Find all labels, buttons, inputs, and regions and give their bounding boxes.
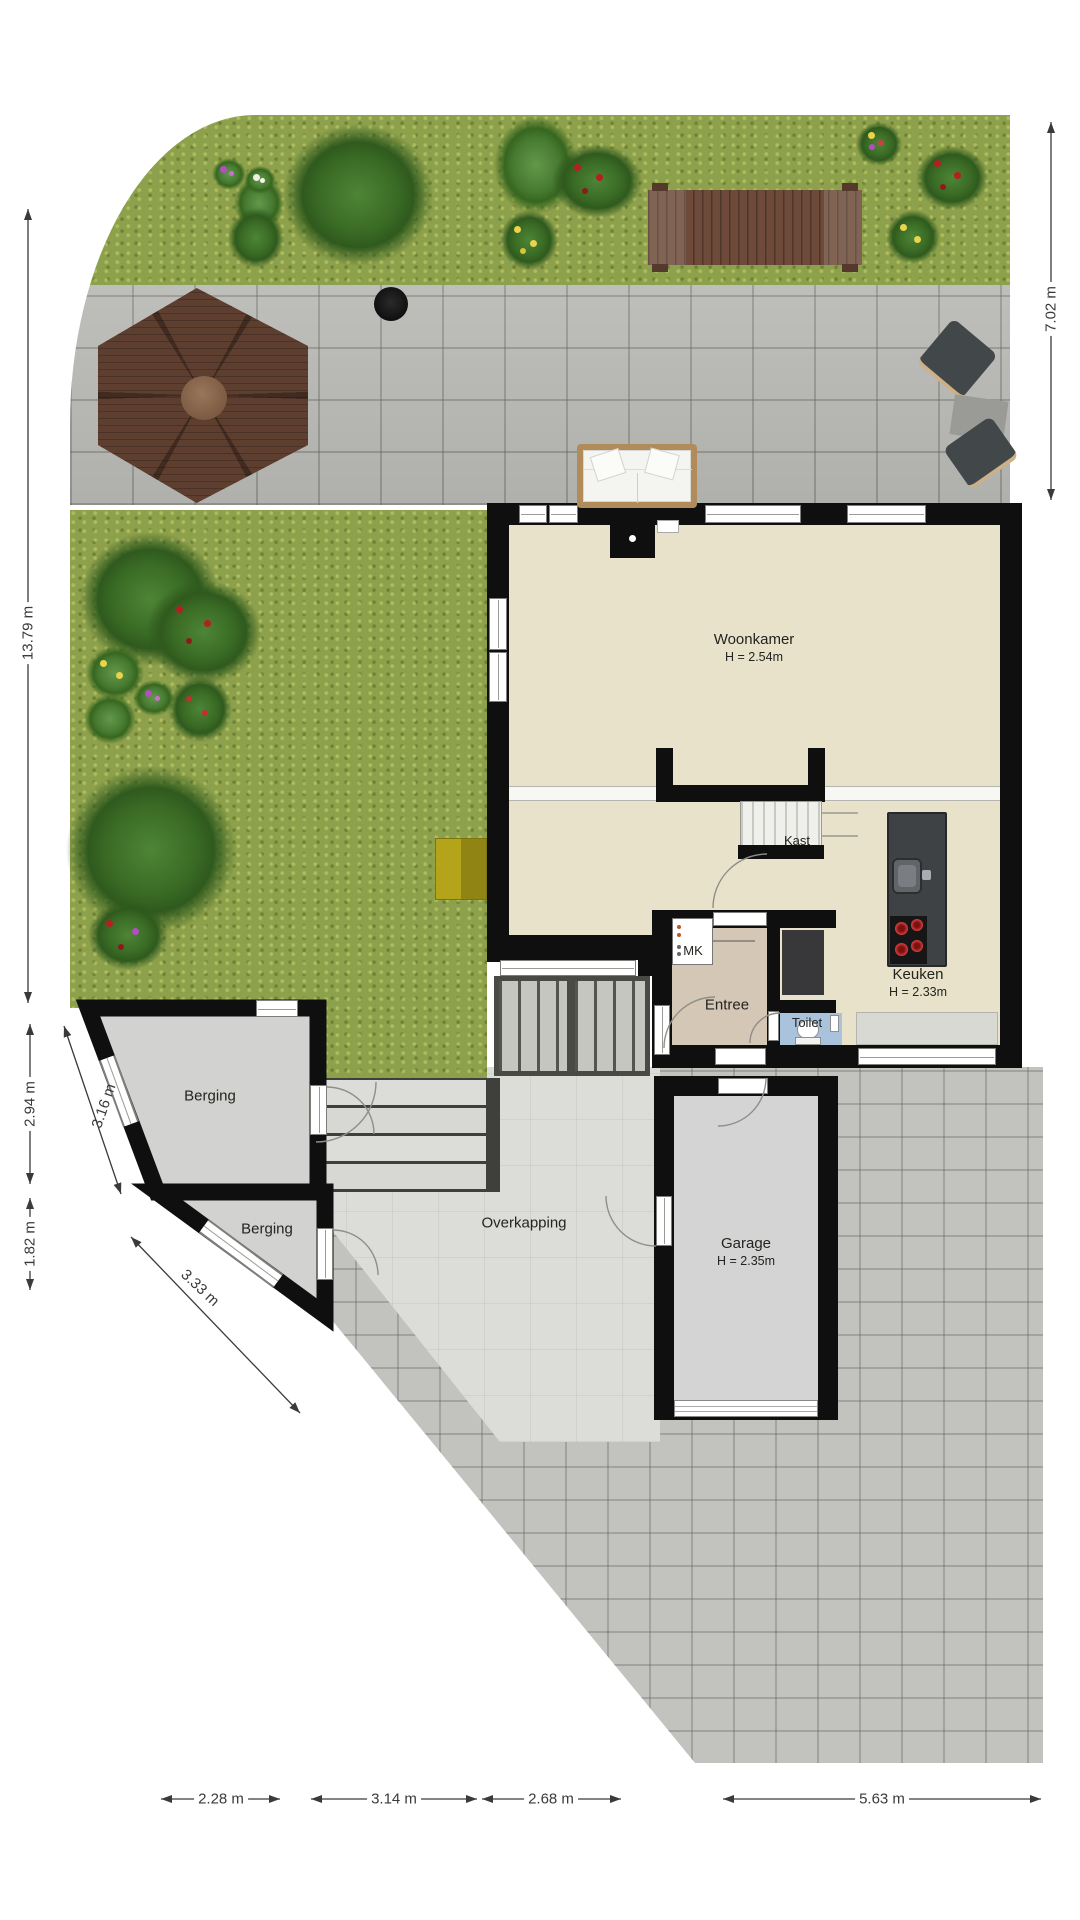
floor-plan: Woonkamer H = 2.54m Keuken H = 2.33m Gar… — [0, 0, 1080, 1920]
room-label-woonkamer: Woonkamer H = 2.54m — [714, 631, 795, 665]
room-label-keuken: Keuken H = 2.33m — [889, 966, 947, 1000]
room-label-berging-lower: Berging — [241, 1221, 293, 1240]
room-height: H = 2.33m — [889, 985, 947, 1001]
room-name: Berging — [241, 1221, 293, 1240]
room-name: Kast — [784, 833, 810, 849]
room-name: MK — [683, 943, 703, 959]
room-label-toilet: Toilet — [792, 1015, 822, 1031]
room-label-garage: Garage H = 2.35m — [717, 1235, 775, 1269]
window — [256, 1000, 298, 1017]
dimension-label: 2.94 m — [22, 1077, 39, 1131]
room-name: Berging — [184, 1088, 236, 1107]
dimension-label: 3.14 m — [367, 1791, 421, 1808]
dimension-label: 7.02 m — [1043, 282, 1060, 336]
plan-linework — [0, 0, 1080, 1920]
dimension-lines — [28, 122, 1051, 1799]
dimension-label: 1.82 m — [22, 1217, 39, 1271]
dimension-label: 2.28 m — [194, 1791, 248, 1808]
berging-door — [317, 1228, 333, 1280]
room-label-berging-upper: Berging — [184, 1088, 236, 1107]
room-name: Toilet — [792, 1015, 822, 1031]
dimension-label: 5.63 m — [855, 1791, 909, 1808]
room-label-entree: Entree — [705, 997, 749, 1016]
room-name: Entree — [705, 997, 749, 1016]
room-height: H = 2.35m — [717, 1254, 775, 1270]
room-height: H = 2.54m — [714, 650, 795, 666]
room-name: Garage — [717, 1235, 775, 1254]
window — [310, 1085, 327, 1135]
room-label-kast: Kast — [784, 833, 810, 849]
dimension-label: 2.68 m — [524, 1791, 578, 1808]
room-name: Overkapping — [481, 1215, 566, 1234]
room-name: Keuken — [889, 966, 947, 985]
dimension-label: 13.79 m — [20, 602, 37, 664]
room-label-mk: MK — [683, 943, 703, 959]
room-label-overkapping: Overkapping — [481, 1215, 566, 1234]
room-name: Woonkamer — [714, 631, 795, 650]
door-arcs — [316, 854, 780, 1275]
